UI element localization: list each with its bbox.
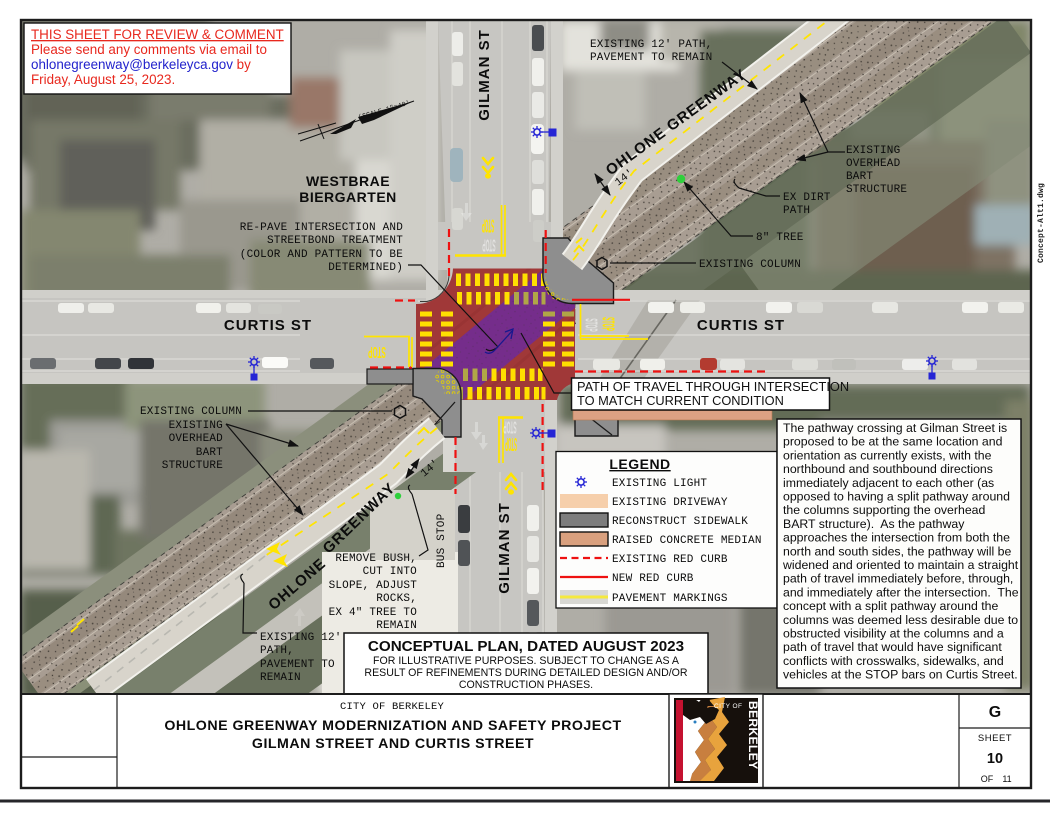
svg-text:RE-PAVE INTERSECTION AND: RE-PAVE INTERSECTION AND (240, 222, 403, 234)
svg-text:CURTIS ST: CURTIS ST (224, 317, 312, 334)
svg-text:RAISED CONCRETE MEDIAN: RAISED CONCRETE MEDIAN (612, 535, 762, 547)
svg-text:the columns supporting the ove: the columns supporting the overhead (783, 503, 986, 517)
svg-text:CITY OF BERKELEY: CITY OF BERKELEY (340, 701, 445, 713)
svg-text:approaches the intersection fr: approaches the intersection from both th… (783, 531, 1010, 545)
svg-text:opposed to having a split path: opposed to having a split pathway around (783, 490, 1010, 504)
svg-text:G: G (989, 704, 1001, 721)
svg-text:BERKELEY: BERKELEY (746, 701, 760, 770)
svg-text:EX DIRT: EX DIRT (783, 192, 831, 204)
svg-text:conflicts with crosswalks, sid: conflicts with crosswalks, sidewalks, an… (783, 654, 1004, 668)
svg-text:north and south sides, the pat: north and south sides, the pathway will … (783, 544, 1011, 558)
svg-text:concept with a split pathway a: concept with a split pathway around the (783, 599, 998, 613)
svg-text:PATH,: PATH, (260, 645, 294, 657)
svg-text:BART: BART (196, 447, 223, 459)
svg-text:PATH OF TRAVEL THROUGH INTERSE: PATH OF TRAVEL THROUGH INTERSECTION (577, 379, 849, 394)
svg-text:FOR ILLUSTRATIVE PURPOSES. SUB: FOR ILLUSTRATIVE PURPOSES. SUBJECT TO CH… (373, 655, 680, 667)
svg-text:EXISTING RED CURB: EXISTING RED CURB (612, 554, 728, 566)
svg-text:GILMAN ST: GILMAN ST (476, 29, 493, 121)
svg-text:OF: OF (981, 774, 994, 784)
svg-text:Please send any comments via e: Please send any comments via email to (31, 42, 267, 57)
svg-text:OVERHEAD: OVERHEAD (846, 158, 901, 170)
svg-text:EXISTING COLUMN: EXISTING COLUMN (140, 406, 242, 418)
svg-text:PATH: PATH (783, 205, 810, 217)
svg-text:RECONSTRUCT SIDEWALK: RECONSTRUCT SIDEWALK (612, 516, 748, 528)
svg-text:PAVEMENT MARKINGS: PAVEMENT MARKINGS (612, 593, 728, 605)
svg-text:WESTBRAE: WESTBRAE (306, 173, 390, 189)
svg-text:STOP: STOP (482, 236, 496, 256)
svg-text:STOP: STOP (482, 215, 495, 236)
svg-text:BIERGARTEN: BIERGARTEN (299, 189, 397, 205)
svg-text:Concept-Alt1.dwg: Concept-Alt1.dwg (1037, 183, 1046, 263)
svg-text:REMAIN: REMAIN (376, 620, 417, 632)
svg-text:GILMAN STREET AND CURTIS STREE: GILMAN STREET AND CURTIS STREET (252, 736, 534, 752)
svg-text:ohlonegreenway@berkeleyca.gov: ohlonegreenway@berkeleyca.gov by (31, 57, 251, 72)
svg-text:REMOVE BUSH,: REMOVE BUSH, (335, 553, 417, 565)
svg-text:11: 11 (1002, 774, 1011, 784)
svg-text:proposed to be at the same loc: proposed to be at the same location and (783, 435, 1003, 449)
svg-text:northbound and southbound dire: northbound and southbound directions (783, 462, 993, 476)
svg-text:widened and oriented to mainta: widened and oriented to maintain a strai… (782, 558, 1019, 572)
svg-text:CUT INTO: CUT INTO (363, 566, 418, 578)
svg-text:LEGEND: LEGEND (609, 456, 670, 472)
svg-text:STRUCTURE: STRUCTURE (162, 460, 223, 472)
svg-text:ROCKS,: ROCKS, (376, 593, 417, 605)
svg-text:EXISTING 12' PATH,: EXISTING 12' PATH, (590, 39, 712, 51)
svg-text:immediately adjacent to each o: immediately adjacent to each other (as (783, 476, 994, 490)
svg-text:STOP: STOP (599, 317, 619, 331)
svg-text:SLOPE, ADJUST: SLOPE, ADJUST (329, 580, 418, 592)
svg-text:orientation as currently exist: orientation as currently exists, with th… (783, 448, 992, 462)
svg-text:BART: BART (846, 171, 873, 183)
svg-text:TO MATCH CURRENT CONDITION: TO MATCH CURRENT CONDITION (577, 393, 784, 408)
svg-text:STOP: STOP (368, 343, 386, 361)
svg-text:GILMAN ST: GILMAN ST (496, 502, 513, 594)
svg-text:columns was deemed less desira: columns was deemed less desirable due to (783, 613, 1018, 627)
svg-text:path of travel immediately bef: path of travel immediately before, throu… (783, 572, 1013, 586)
svg-text:EXISTING COLUMN: EXISTING COLUMN (699, 259, 801, 271)
svg-text:The pathway crossing at Gilman: The pathway crossing at Gilman Street is (783, 421, 1007, 435)
svg-text:CITY OF: CITY OF (714, 703, 742, 710)
svg-text:OVERHEAD: OVERHEAD (169, 433, 224, 445)
svg-text:EXISTING DRIVEWAY: EXISTING DRIVEWAY (612, 497, 728, 509)
svg-text:CURTIS ST: CURTIS ST (697, 317, 785, 334)
svg-text:vehicles at the STOP bars on C: vehicles at the STOP bars on Curtis Stre… (783, 668, 1018, 682)
svg-text:obstructed visibility at the c: obstructed visibility at the columns and… (783, 627, 1004, 641)
svg-text:THIS SHEET FOR REVIEW & COMMEN: THIS SHEET FOR REVIEW & COMMENT (31, 27, 284, 42)
svg-text:REMAIN: REMAIN (260, 672, 301, 684)
svg-text:EX 4" TREE TO: EX 4" TREE TO (329, 607, 418, 619)
svg-text:BART structure). As the pathw: BART structure). As the pathway (783, 517, 965, 531)
svg-text:EXISTING LIGHT: EXISTING LIGHT (612, 478, 707, 490)
svg-text:STOP: STOP (505, 434, 517, 455)
svg-text:OHLONE GREENWAY MODERNIZATION: OHLONE GREENWAY MODERNIZATION AND SAFETY… (164, 718, 621, 734)
svg-text:SHEET: SHEET (978, 733, 1012, 744)
svg-text:NEW RED CURB: NEW RED CURB (612, 573, 694, 585)
svg-text:RESULT OF REFINEMENTS DURING D: RESULT OF REFINEMENTS DURING DETAILED DE… (364, 667, 687, 679)
svg-text:Friday, August 25, 2023.: Friday, August 25, 2023. (31, 72, 175, 87)
svg-text:8" TREE: 8" TREE (756, 232, 804, 244)
svg-text:CONCEPTUAL PLAN, DATED AUGUST: CONCEPTUAL PLAN, DATED AUGUST 2023 (368, 638, 684, 655)
svg-text:STREETBOND TREATMENT: STREETBOND TREATMENT (267, 235, 403, 247)
svg-text:CONSTRUCTION PHASES.: CONSTRUCTION PHASES. (459, 679, 593, 691)
svg-text:PAVEMENT TO: PAVEMENT TO (260, 659, 335, 671)
svg-text:and immediately after the inte: and immediately after the intersection. … (783, 585, 1019, 599)
svg-text:EXISTING: EXISTING (846, 145, 900, 157)
svg-text:PAVEMENT TO REMAIN: PAVEMENT TO REMAIN (590, 52, 712, 64)
svg-text:(COLOR AND PATTERN TO BE: (COLOR AND PATTERN TO BE (240, 249, 403, 261)
svg-text:path of travel that would have: path of travel that would have significa… (783, 640, 1002, 654)
svg-text:STRUCTURE: STRUCTURE (846, 184, 907, 196)
svg-text:EXISTING: EXISTING (169, 420, 223, 432)
svg-text:BUS STOP: BUS STOP (436, 513, 448, 568)
svg-text:DETERMINED): DETERMINED) (328, 262, 403, 274)
svg-text:10: 10 (987, 751, 1003, 767)
svg-text:EXISTING 12': EXISTING 12' (260, 632, 342, 644)
